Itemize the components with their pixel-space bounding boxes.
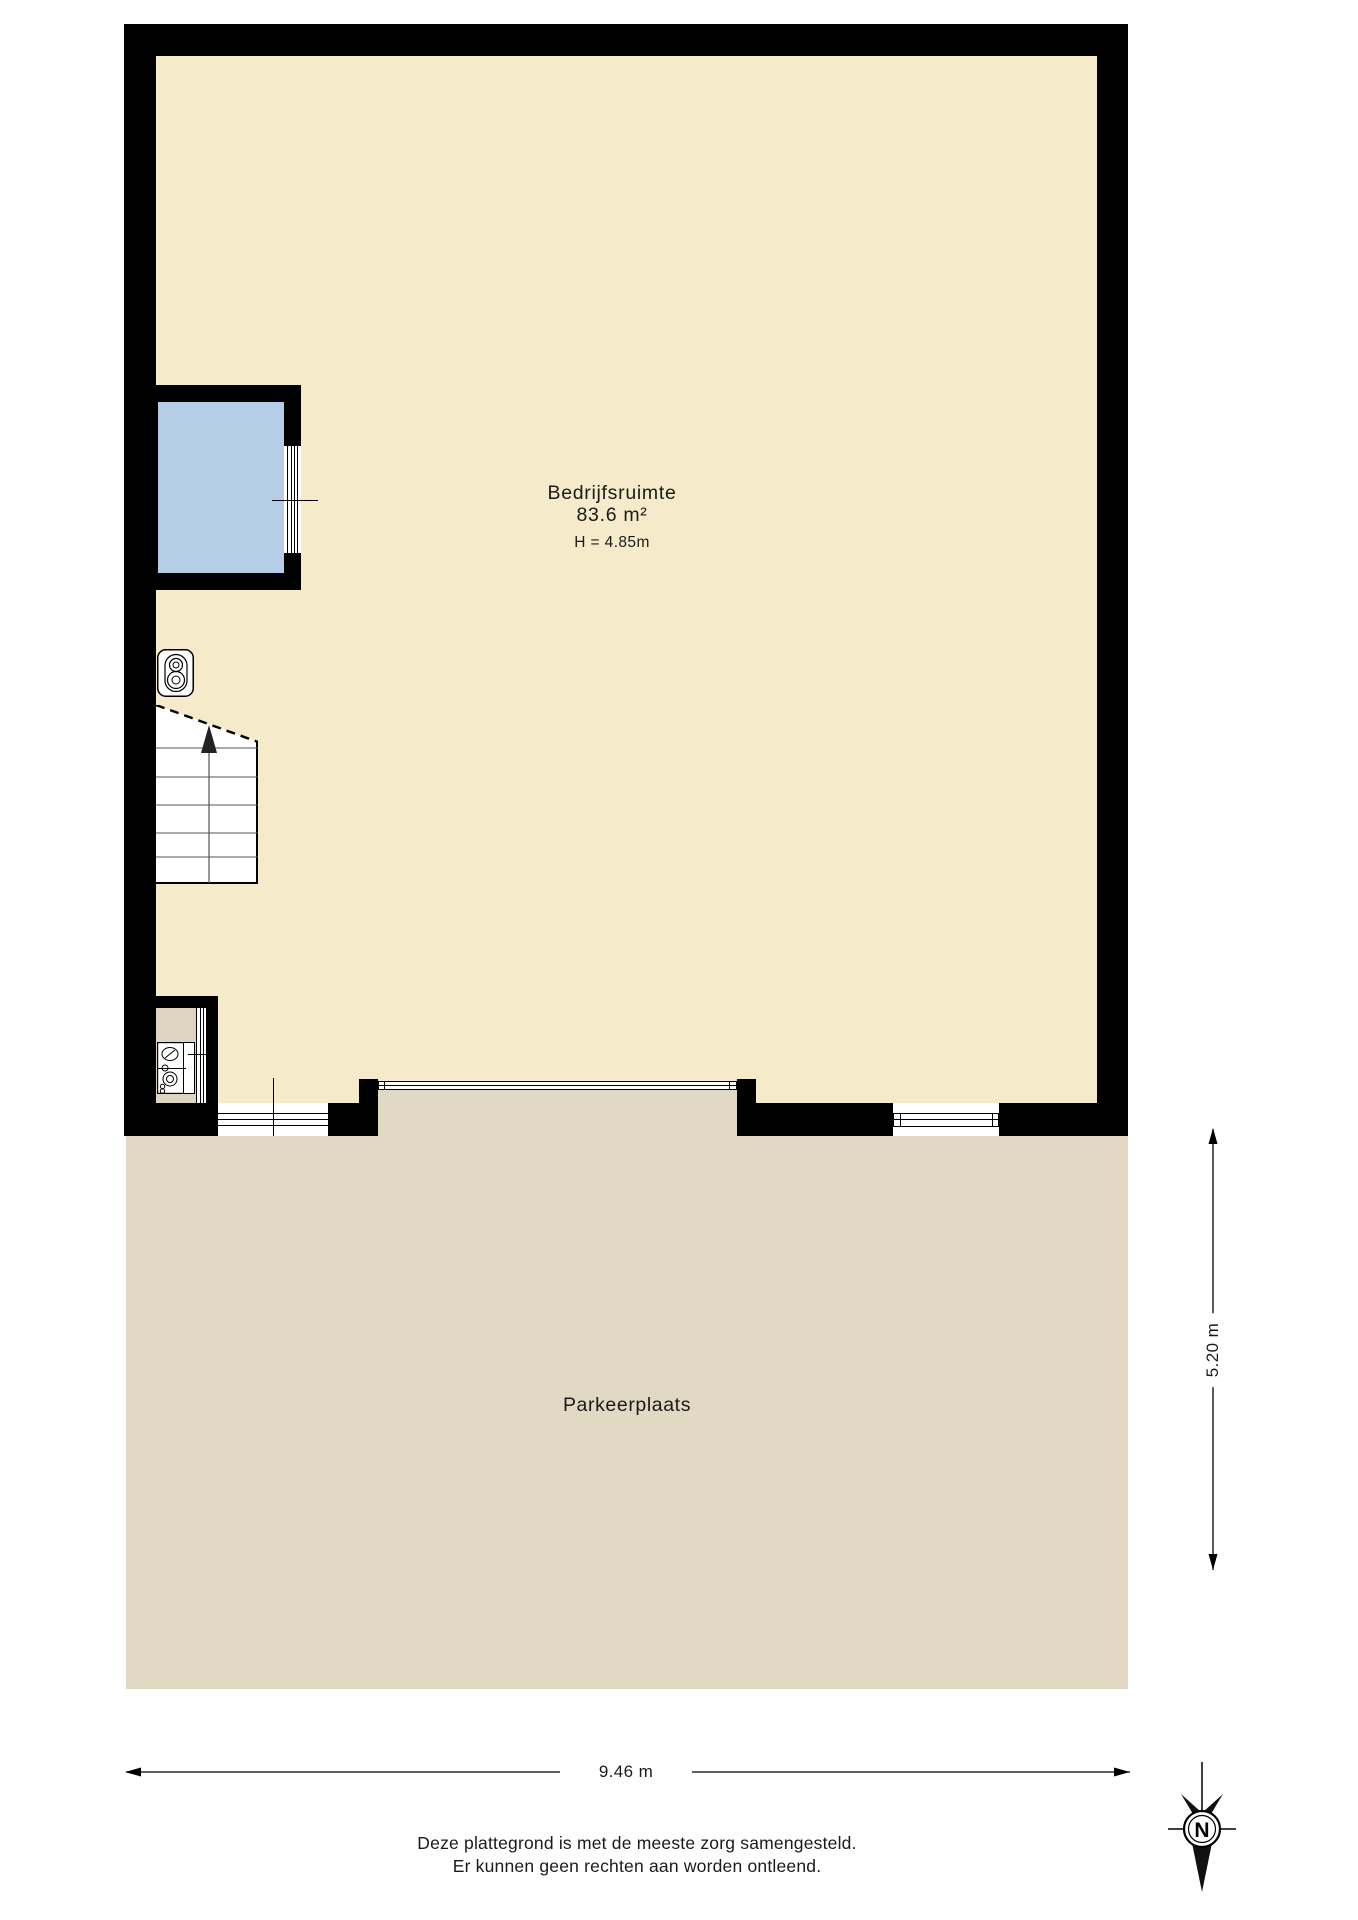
closet-glazed-partition <box>196 1008 207 1103</box>
depth-dimension-label: 5.20 m <box>1202 1313 1224 1387</box>
north-compass-icon: N <box>1162 1762 1242 1894</box>
footer-disclaimer: Deze plattegrond is met de meeste zorg s… <box>137 1832 1137 1878</box>
bay-right-pier <box>737 1079 756 1136</box>
compass-north-letter: N <box>1194 1819 1209 1842</box>
closet-top-wall <box>156 996 208 1008</box>
front-window-right-glazing <box>893 1113 999 1127</box>
entrance-bay-floor <box>378 1090 737 1136</box>
closet-door-center-tick <box>157 1068 186 1069</box>
footer-disclaimer-line2: Er kunnen geen rechten aan worden ontlee… <box>137 1855 1137 1878</box>
bay-left-pier <box>359 1079 378 1136</box>
closet-right-wall <box>207 996 218 1136</box>
room-area: 83.6 m² <box>462 504 762 526</box>
blue-room-floor <box>158 402 284 573</box>
blue-room-window-center-tick <box>272 500 318 501</box>
bay-glass-front <box>378 1081 737 1090</box>
width-dimension-label: 9.46 m <box>560 1758 692 1786</box>
room-name: Bedrijfsruimte <box>462 482 762 504</box>
footer-disclaimer-line1: Deze plattegrond is met de meeste zorg s… <box>137 1832 1137 1855</box>
boiler-icon <box>157 649 195 697</box>
parking-label: Parkeerplaats <box>127 1394 1127 1417</box>
closet-partition-center-tick <box>188 1054 216 1055</box>
room-label: Bedrijfsruimte 83.6 m² H = 4.85m <box>462 482 762 552</box>
room-ceiling-height: H = 4.85m <box>462 534 762 552</box>
stairs-up-icon <box>156 705 258 885</box>
floorplan-page: Bedrijfsruimte 83.6 m² H = 4.85m Parkeer… <box>0 0 1358 1920</box>
